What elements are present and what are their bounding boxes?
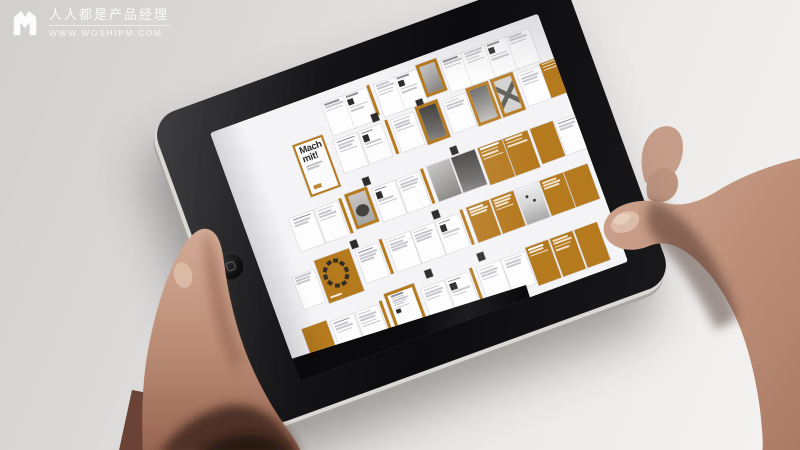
- left-palm-deep-shadow: [196, 435, 294, 450]
- photo-chip: [424, 269, 433, 279]
- home-button-icon: [224, 260, 236, 272]
- right-index-fingertip: [642, 126, 683, 185]
- watermark: 人人都是产品经理 WWW.WOSHIPM.COM: [10, 7, 169, 38]
- watermark-title: 人人都是产品经理: [49, 7, 169, 23]
- left-wrist: [118, 390, 264, 450]
- photo-chip: [477, 251, 486, 261]
- watermark-divider: [49, 25, 169, 26]
- tablet-screen[interactable]: Mach mit!: [210, 14, 628, 381]
- watermark-url: WWW.WOSHIPM.COM: [49, 28, 169, 38]
- photo-scene: Mach mit!: [0, 0, 800, 450]
- magazine-cover-title: Mach mit!: [298, 139, 327, 164]
- right-middle-fingertip: [646, 168, 678, 202]
- tablet-device: Mach mit!: [150, 0, 674, 430]
- photo-chip: [432, 210, 441, 220]
- left-thumb-nail: [171, 260, 195, 290]
- woshipm-logo-icon: [10, 8, 40, 38]
- photo-chip: [350, 240, 359, 250]
- photo-chip: [362, 176, 371, 186]
- home-button[interactable]: [213, 249, 248, 284]
- spread-page: Mach mit!: [292, 134, 340, 197]
